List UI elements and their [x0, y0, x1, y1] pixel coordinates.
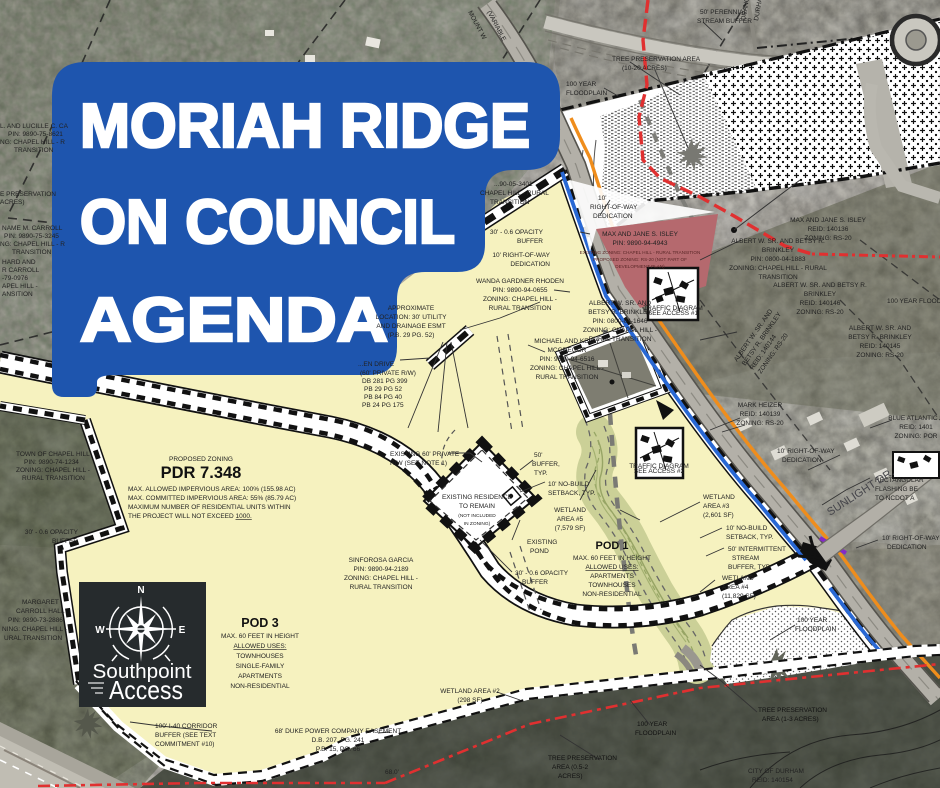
- svg-text:TRANSITION: TRANSITION: [14, 147, 54, 154]
- svg-text:AREA (0.5-2: AREA (0.5-2: [552, 764, 589, 771]
- svg-text:NG: CHAPEL HILL - R: NG: CHAPEL HILL - R: [0, 241, 65, 248]
- svg-text:(NOT INCLUDED: (NOT INCLUDED: [458, 513, 496, 519]
- svg-text:BETSY R. BRINKLEY: BETSY R. BRINKLEY: [588, 309, 652, 316]
- svg-text:ZONING: CHAPEL HILL -: ZONING: CHAPEL HILL -: [483, 296, 557, 303]
- svg-text:RURAL TRANSITION: RURAL TRANSITION: [22, 475, 85, 482]
- svg-text:BETSY R. BRINKLEY: BETSY R. BRINKLEY: [848, 334, 912, 341]
- svg-text:WETLAND: WETLAND: [554, 507, 586, 514]
- svg-text:PIN: 9890-94-6516: PIN: 9890-94-6516: [540, 356, 595, 363]
- svg-text:10' RIGHT-OF-WAY: 10' RIGHT-OF-WAY: [777, 448, 835, 455]
- svg-text:POND: POND: [530, 548, 549, 555]
- svg-text:FLOODPLAIN: FLOODPLAIN: [635, 730, 676, 737]
- svg-text:ALLOWED USES:: ALLOWED USES:: [585, 564, 638, 571]
- svg-text:TRANSITION: TRANSITION: [12, 249, 52, 256]
- svg-text:TO REMAIN: TO REMAIN: [459, 503, 495, 510]
- svg-text:BLUE ATLANTIC P: BLUE ATLANTIC P: [888, 415, 940, 422]
- svg-text:PIN: 0800-04-1646: PIN: 0800-04-1646: [593, 318, 648, 325]
- svg-text:BRINKLEY: BRINKLEY: [762, 247, 795, 254]
- svg-text:MCGREGOR: MCGREGOR: [548, 347, 587, 354]
- svg-text:TREE PRESERVATION AREA: TREE PRESERVATION AREA: [612, 56, 701, 63]
- svg-text:NING: CHAPEL HILL -: NING: CHAPEL HILL -: [2, 626, 67, 633]
- svg-text:Access: Access: [109, 675, 183, 705]
- svg-text:ZONING: RS-20: ZONING: RS-20: [796, 309, 844, 316]
- svg-text:APARTMENTS: APARTMENTS: [590, 573, 634, 580]
- svg-text:50' INTERMITTENT: 50' INTERMITTENT: [728, 546, 786, 553]
- svg-text:10' RIGHT-OF-WAY: 10' RIGHT-OF-WAY: [492, 252, 550, 259]
- svg-text:EXISTING ZONING: CHAPEL HILL -: EXISTING ZONING: CHAPEL HILL - RURAL TRA…: [580, 250, 701, 255]
- svg-text:PDR 7.348: PDR 7.348: [161, 464, 242, 482]
- svg-text:DEDICATION: DEDICATION: [782, 457, 822, 464]
- svg-text:FLOODPLAIN: FLOODPLAIN: [566, 90, 607, 97]
- svg-text:APPROXIMATE: APPROXIMATE: [388, 305, 435, 312]
- svg-text:10': 10': [598, 195, 606, 202]
- svg-text:R/W (SEE NOTE 1): R/W (SEE NOTE 1): [390, 460, 447, 467]
- svg-text:LOCATION: 30' UTILITY: LOCATION: 30' UTILITY: [376, 314, 447, 321]
- svg-text:MARGARET: MARGARET: [22, 599, 59, 606]
- svg-text:ALLOWED USES:: ALLOWED USES:: [233, 643, 286, 650]
- svg-text:MAX. ALLOWED IMPERVIOUS AREA:: MAX. ALLOWED IMPERVIOUS AREA: 100% (155.…: [128, 486, 296, 493]
- svg-text:ALBERT W. SR. AND: ALBERT W. SR. AND: [849, 325, 912, 332]
- svg-text:POD 3: POD 3: [241, 616, 279, 630]
- svg-text:PIN: 9890-94-4943: PIN: 9890-94-4943: [613, 240, 668, 247]
- svg-text:PB 24 PG 175: PB 24 PG 175: [362, 402, 404, 409]
- svg-text:WETLAND: WETLAND: [722, 575, 754, 582]
- svg-text:68.0': 68.0': [385, 769, 399, 776]
- svg-text:AREA #5: AREA #5: [557, 516, 584, 523]
- svg-text:L. AND LUCILLE C. CA: L. AND LUCILLE C. CA: [0, 123, 69, 130]
- svg-text:HARD AND: HARD AND: [2, 259, 36, 266]
- svg-text:POD 1: POD 1: [595, 540, 628, 552]
- svg-text:REID: 1401: REID: 1401: [899, 424, 933, 431]
- svg-text:APARTMENTS: APARTMENTS: [238, 673, 282, 680]
- svg-text:COMMITMENT #10): COMMITMENT #10): [155, 741, 214, 748]
- svg-text:RURAL TRANSITION: RURAL TRANSITION: [536, 374, 599, 381]
- svg-text:EXISTING 60' PRIVATE: EXISTING 60' PRIVATE: [390, 451, 460, 458]
- svg-text:PIN: 9890-75-3245: PIN: 9890-75-3245: [4, 233, 59, 240]
- svg-text:SEE ACCESS #2: SEE ACCESS #2: [634, 468, 685, 475]
- svg-text:100 YEAR: 100 YEAR: [566, 81, 597, 88]
- svg-text:P.B. 15, PG. 66: P.B. 15, PG. 66: [316, 746, 361, 753]
- svg-text:10' NO-BUILD: 10' NO-BUILD: [548, 481, 590, 488]
- svg-text:TOWN OF CHAPEL HILL: TOWN OF CHAPEL HILL: [16, 451, 90, 458]
- svg-text:TYP.: TYP.: [534, 470, 548, 477]
- svg-text:NON-RESIDENTIAL: NON-RESIDENTIAL: [582, 591, 642, 598]
- svg-text:ON COUNCIL: ON COUNCIL: [80, 188, 455, 257]
- svg-text:BUFFER: BUFFER: [52, 538, 78, 545]
- svg-text:SETBACK, TYP.: SETBACK, TYP.: [548, 490, 596, 497]
- svg-text:BUFFER,: BUFFER,: [532, 461, 560, 468]
- svg-text:BUFFER: BUFFER: [522, 579, 548, 586]
- svg-text:MAX. COMMITTED IMPERVIOUS AREA: MAX. COMMITTED IMPERVIOUS AREA: 55% (85.…: [128, 495, 296, 502]
- svg-text:AND DRAINAGE ESMT: AND DRAINAGE ESMT: [376, 323, 445, 330]
- svg-text:IN ZONING): IN ZONING): [464, 521, 491, 527]
- svg-text:100 YEAR: 100 YEAR: [797, 617, 828, 624]
- svg-text:WANDA GARDNER RHODEN: WANDA GARDNER RHODEN: [476, 278, 564, 285]
- svg-text:CHAPEL HILL - RURAL: CHAPEL HILL - RURAL: [480, 190, 549, 197]
- svg-text:E: E: [179, 625, 186, 636]
- svg-text:PB 29 PG 52: PB 29 PG 52: [364, 386, 402, 393]
- svg-text:AREA #4: AREA #4: [722, 584, 749, 591]
- svg-text:URAL TRANSITION: URAL TRANSITION: [4, 635, 62, 642]
- svg-text:SINFOROSA GARCIA: SINFOROSA GARCIA: [349, 557, 414, 564]
- svg-text:50': 50': [534, 452, 542, 459]
- svg-text:ZONING: POR: ZONING: POR: [895, 433, 938, 440]
- svg-text:BUFFER (SEE TEXT: BUFFER (SEE TEXT: [155, 732, 216, 739]
- svg-text:RURAL TRANSITION: RURAL TRANSITION: [350, 584, 413, 591]
- svg-text:PIN: 9890-73-2886: PIN: 9890-73-2886: [8, 617, 63, 624]
- svg-text:REID: 140136: REID: 140136: [808, 226, 849, 233]
- svg-text:MARK HEIZER: MARK HEIZER: [738, 402, 783, 409]
- svg-text:30' - 0.6 OPACITY: 30' - 0.6 OPACITY: [515, 570, 569, 577]
- svg-text:ALBERT W. SR. AND BETSY R.: ALBERT W. SR. AND BETSY R.: [731, 238, 825, 245]
- svg-text:(11,829 SF): (11,829 SF): [722, 593, 756, 600]
- svg-text:EXISTING RESIDENCE: EXISTING RESIDENCE: [442, 494, 513, 501]
- svg-text:ZONING: RS-20: ZONING: RS-20: [856, 352, 904, 359]
- svg-text:NG: CHAPEL HILL - R: NG: CHAPEL HILL - R: [0, 139, 65, 146]
- svg-text:N: N: [137, 585, 144, 596]
- svg-text:BUFFER: BUFFER: [517, 238, 543, 245]
- svg-text:MAX AND JANE S. ISLEY: MAX AND JANE S. ISLEY: [602, 231, 679, 238]
- svg-text:100 YEAR FLOODP: 100 YEAR FLOODP: [887, 298, 940, 305]
- svg-text:RIGHT-OF-WAY: RIGHT-OF-WAY: [590, 204, 638, 211]
- svg-text:ZONING: CHAPEL HILL -: ZONING: CHAPEL HILL -: [16, 467, 90, 474]
- svg-text:FLASHING BE: FLASHING BE: [875, 486, 919, 493]
- svg-text:TREE PRESERVATION: TREE PRESERVATION: [548, 755, 617, 762]
- svg-text:SETBACK, TYP.: SETBACK, TYP.: [726, 534, 774, 541]
- svg-text:APEL HILL -: APEL HILL -: [2, 283, 38, 290]
- svg-text:100 YEAR: 100 YEAR: [637, 721, 668, 728]
- svg-text:REID: 140146: REID: 140146: [800, 300, 841, 307]
- svg-text:AREA (1-3 ACRES): AREA (1-3 ACRES): [762, 716, 819, 723]
- svg-text:NAME M. CARROLL: NAME M. CARROLL: [2, 225, 63, 232]
- svg-text:PIN: 9890-94-2189: PIN: 9890-94-2189: [354, 566, 409, 573]
- svg-text:D.B. 207, PG. 241: D.B. 207, PG. 241: [312, 737, 365, 744]
- svg-text:STREAM: STREAM: [732, 555, 759, 562]
- svg-text:PROPOSED ZONING: RS-20 (NOT PA: PROPOSED ZONING: RS-20 (NOT PART OF: [593, 257, 687, 262]
- svg-text:PROPOSED ZONING: PROPOSED ZONING: [169, 456, 233, 463]
- svg-text:W: W: [95, 625, 105, 636]
- svg-text:30' - 0.6 OPACITY: 30' - 0.6 OPACITY: [25, 529, 79, 536]
- svg-text:ANSITION: ANSITION: [2, 291, 33, 298]
- svg-text:10' NO-BUILD: 10' NO-BUILD: [726, 525, 768, 532]
- svg-text:FLOODPLAIN: FLOODPLAIN: [795, 626, 836, 633]
- svg-text:AGENDA: AGENDA: [80, 286, 388, 355]
- svg-text:DEVELOPMENT PLAN): DEVELOPMENT PLAN): [615, 264, 665, 269]
- svg-text:DEDICATION: DEDICATION: [510, 261, 550, 268]
- svg-text:-79-0976: -79-0976: [2, 275, 28, 282]
- svg-text:MAXIMUM NUMBER OF RESIDENTIAL: MAXIMUM NUMBER OF RESIDENTIAL UNITS WITH…: [128, 504, 291, 511]
- svg-text:SEE ACCESS #1: SEE ACCESS #1: [648, 310, 699, 317]
- svg-text:WETLAND AREA #2: WETLAND AREA #2: [440, 688, 500, 695]
- svg-text:ALBERT W. SR. AND BETSY R.: ALBERT W. SR. AND BETSY R.: [773, 282, 867, 289]
- svg-text:AREA #3: AREA #3: [703, 503, 730, 510]
- svg-text:(P.B. 29 PG. 52): (P.B. 29 PG. 52): [388, 332, 435, 339]
- svg-text:CARROLL HALL: CARROLL HALL: [16, 608, 65, 615]
- svg-text:THE PROJECT WILL NOT EXCEED 10: THE PROJECT WILL NOT EXCEED 1000.: [128, 513, 252, 520]
- svg-text:E PRESERVATION: E PRESERVATION: [0, 191, 56, 198]
- svg-text:TREE PRESERVATION: TREE PRESERVATION: [758, 707, 827, 714]
- svg-text:ZONING: RS-20: ZONING: RS-20: [736, 420, 784, 427]
- svg-text:PIN: 0800-04-1883: PIN: 0800-04-1883: [751, 256, 806, 263]
- svg-text:(7,579 SF): (7,579 SF): [555, 525, 586, 532]
- svg-text:DEDICATION: DEDICATION: [887, 544, 927, 551]
- svg-text:REID: 140145: REID: 140145: [860, 343, 901, 350]
- svg-text:PIN: 9890-94-0655: PIN: 9890-94-0655: [493, 287, 548, 294]
- svg-text:TOWNHOUSES: TOWNHOUSES: [236, 653, 284, 660]
- svg-text:RURAL TRANSITION: RURAL TRANSITION: [589, 336, 652, 343]
- svg-text:R CARROLL: R CARROLL: [2, 267, 40, 274]
- svg-text:TRANSITION: TRANSITION: [758, 274, 798, 281]
- svg-text:EXISTING: EXISTING: [527, 539, 557, 546]
- svg-text:SINGLE-FAMILY: SINGLE-FAMILY: [236, 663, 285, 670]
- svg-text:PIN: 9890-75-8621: PIN: 9890-75-8621: [8, 131, 63, 138]
- svg-text:10' RIGHT-OF-WAY: 10' RIGHT-OF-WAY: [882, 535, 940, 542]
- svg-text:68' DUKE POWER COMPANY EASEMEN: 68' DUKE POWER COMPANY EASEMENT: [275, 728, 401, 735]
- svg-text:REID: 140154: REID: 140154: [752, 777, 793, 784]
- svg-text:ZONING: CHAPEL HILL -: ZONING: CHAPEL HILL -: [344, 575, 418, 582]
- svg-text:PIN: 9890-74-1234: PIN: 9890-74-1234: [24, 459, 79, 466]
- svg-text:30' - 0.6 OPACITY: 30' - 0.6 OPACITY: [490, 229, 544, 236]
- svg-text:ZONING: CHAPEL HILL -: ZONING: CHAPEL HILL -: [530, 365, 604, 372]
- svg-text:...90-05-3401: ...90-05-3401: [494, 181, 533, 188]
- svg-text:100' I-40 CORRIDOR: 100' I-40 CORRIDOR: [155, 723, 218, 730]
- svg-text:(10-20 ACRES): (10-20 ACRES): [622, 65, 667, 72]
- svg-text:ACRES): ACRES): [0, 199, 25, 206]
- svg-text:MORIAH RIDGE: MORIAH RIDGE: [80, 92, 530, 161]
- svg-text:BRINKLEY: BRINKLEY: [804, 291, 837, 298]
- svg-text:ZONING: CHAPEL HILL -: ZONING: CHAPEL HILL -: [583, 327, 657, 334]
- svg-text:TOWNHOUSES: TOWNHOUSES: [588, 582, 636, 589]
- svg-text:MAX. 60 FEET IN HEIGHT: MAX. 60 FEET IN HEIGHT: [573, 555, 651, 562]
- svg-text:MAX. 60 FEET IN HEIGHT: MAX. 60 FEET IN HEIGHT: [221, 633, 299, 640]
- svg-text:DEDICATION: DEDICATION: [593, 213, 633, 220]
- svg-text:WETLAND: WETLAND: [703, 494, 735, 501]
- svg-text:TO NCDOT A: TO NCDOT A: [875, 495, 915, 502]
- svg-text:(298 SF): (298 SF): [457, 697, 482, 704]
- svg-text:BUFFER, TYP.: BUFFER, TYP.: [728, 564, 771, 571]
- svg-text:ZONING: CHAPEL HILL - RURAL: ZONING: CHAPEL HILL - RURAL: [729, 265, 827, 272]
- svg-text:...EN DRIVE: ...EN DRIVE: [358, 361, 395, 368]
- svg-text:CITY OF DURHAM: CITY OF DURHAM: [748, 768, 804, 775]
- svg-text:(2,601 SF): (2,601 SF): [703, 512, 734, 519]
- svg-text:PB 84 PG 40: PB 84 PG 40: [364, 394, 402, 401]
- svg-text:TRANSITION: TRANSITION: [490, 199, 530, 206]
- svg-text:MAX AND JANE S. ISLEY: MAX AND JANE S. ISLEY: [790, 217, 867, 224]
- svg-text:REID: 140139: REID: 140139: [740, 411, 781, 418]
- svg-text:RURAL TRANSITION: RURAL TRANSITION: [489, 305, 552, 312]
- svg-text:NON-RESIDENTIAL: NON-RESIDENTIAL: [230, 683, 290, 690]
- svg-text:(60' PRIVATE R/W): (60' PRIVATE R/W): [360, 370, 416, 377]
- svg-text:ALBERT W. SR. AND: ALBERT W. SR. AND: [589, 300, 652, 307]
- svg-text:ACRES): ACRES): [558, 773, 583, 780]
- svg-text:DB 281 PG 399: DB 281 PG 399: [362, 378, 408, 385]
